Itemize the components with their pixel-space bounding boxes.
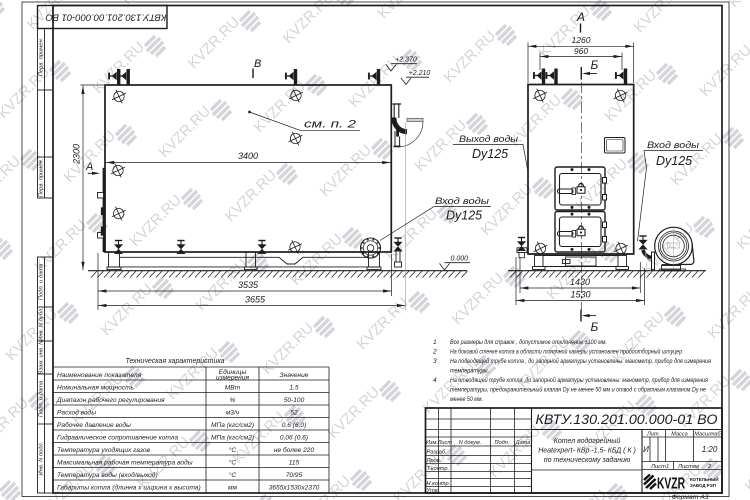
svg-text:KVZR.RU: KVZR.RU xyxy=(164,345,223,404)
svg-text:На отводящей трубе котла ,до з: На отводящей трубе котла ,до запорной ар… xyxy=(450,376,708,384)
svg-text:Масса: Масса xyxy=(671,432,688,438)
svg-text:115: 115 xyxy=(289,460,300,467)
svg-text:Гидравлическое сопротивление к: Гидравлическое сопротивление котла xyxy=(57,434,178,442)
svg-text:70/95: 70/95 xyxy=(286,472,303,479)
svg-text:KVZR.RU: KVZR.RU xyxy=(288,231,347,290)
svg-text:KVZR.RU: KVZR.RU xyxy=(325,384,384,443)
svg-text:3655х1530х2370: 3655х1530х2370 xyxy=(269,485,320,492)
svg-text:KVZR.RU: KVZR.RU xyxy=(156,103,215,162)
svg-text:КВТУ.130.201.00.000-01 ВО: КВТУ.130.201.00.000-01 ВО xyxy=(536,412,719,427)
svg-text:Перв. примен.: Перв. примен. xyxy=(39,38,45,77)
svg-text:KVZR.RU: KVZR.RU xyxy=(280,0,339,47)
svg-text:МПа (кгс/см2): МПа (кгс/см2) xyxy=(211,435,254,442)
svg-text:Перв. примен.: Перв. примен. xyxy=(39,159,45,198)
svg-text:KVZR.RU: KVZR.RU xyxy=(317,142,376,201)
svg-text:2: 2 xyxy=(432,349,437,356)
svg-text:КОТЕЛЬНЫЙ: КОТЕЛЬНЫЙ xyxy=(690,477,719,482)
svg-text:Температура уходящих газов: Температура уходящих газов xyxy=(57,446,150,454)
svg-text:мм: мм xyxy=(228,485,238,492)
svg-text:Утв.: Утв. xyxy=(426,488,440,494)
svg-text:Dy125: Dy125 xyxy=(472,147,508,161)
svg-text:KVZR.RU: KVZR.RU xyxy=(734,195,750,254)
svg-text:N докум.: N докум. xyxy=(459,440,482,446)
svg-text:+2.210: +2.210 xyxy=(409,70,431,77)
svg-text:KVZR.RU: KVZR.RU xyxy=(441,28,500,87)
svg-text:Выход воды: Выход воды xyxy=(459,134,519,144)
svg-text:Heatexpert- КВр -1,5- КБД ( К: Heatexpert- КВр -1,5- КБД ( К ) xyxy=(538,448,636,455)
svg-text:KVZR.RU: KVZR.RU xyxy=(354,295,413,354)
svg-text:МВт: МВт xyxy=(225,385,241,392)
svg-text:KVZR.RU: KVZR.RU xyxy=(742,437,750,496)
svg-text:0,06 (0,6): 0,06 (0,6) xyxy=(280,435,308,442)
svg-text:KVZR.RU: KVZR.RU xyxy=(0,153,24,212)
svg-text:KVZR.RU: KVZR.RU xyxy=(705,284,750,343)
svg-text:А: А xyxy=(85,161,93,173)
svg-text:менее 50 мм.: менее 50 мм. xyxy=(450,396,483,403)
svg-text:Разраб.: Разраб. xyxy=(427,450,447,456)
svg-text:KVZR.RU: KVZR.RU xyxy=(251,78,310,137)
svg-text:°С: °С xyxy=(229,459,237,467)
svg-text:1: 1 xyxy=(666,464,669,470)
svg-text:KVZR.RU: KVZR.RU xyxy=(185,14,244,73)
svg-text:В: В xyxy=(254,58,261,70)
svg-text:Н.контр.: Н.контр. xyxy=(427,481,451,487)
svg-text:ЗАВОД РЭП: ЗАВОД РЭП xyxy=(690,483,716,488)
svg-text:52: 52 xyxy=(290,410,298,417)
svg-text:2300: 2300 xyxy=(72,144,82,165)
svg-text:KVZR.RU: KVZR.RU xyxy=(90,39,149,98)
svg-text:Взам. инв. N: Взам. инв. N xyxy=(39,340,45,375)
svg-text:температуры, предохранительный: температуры, предохранительный клапан Dy… xyxy=(450,386,706,394)
svg-text:Лит.: Лит. xyxy=(646,432,660,438)
svg-text:И: И xyxy=(643,445,649,454)
svg-text:KVZR.RU: KVZR.RU xyxy=(119,0,178,8)
svg-text:На боковой стенке котла в обла: На боковой стенке котла в области топочн… xyxy=(450,348,682,356)
svg-text:температуры.: температуры. xyxy=(450,368,489,375)
svg-text:Инв. N дубл.: Инв. N дубл. xyxy=(39,307,45,341)
svg-text:KVZR.RU: KVZR.RU xyxy=(412,117,471,176)
svg-text:3: 3 xyxy=(433,358,437,365)
svg-text:см. п. 2: см. п. 2 xyxy=(304,119,356,131)
svg-text:Техническая характеристика: Техническая характеристика xyxy=(125,358,224,365)
svg-text:Рабочее давление воды: Рабочее давление воды xyxy=(57,421,131,429)
svg-text:960: 960 xyxy=(574,46,588,56)
svg-text:Котел водогрейный: Котел водогрейный xyxy=(554,437,621,445)
svg-text:КВТУ.130.201.00.000-01 ВО: КВТУ.130.201.00.000-01 ВО xyxy=(45,11,167,22)
svg-text:°С: °С xyxy=(229,471,237,479)
svg-text:KVZR.RU: KVZR.RU xyxy=(0,395,32,454)
svg-text:0,6 (6,0): 0,6 (6,0) xyxy=(282,422,307,429)
svg-text:по техническому заданию: по техническому заданию xyxy=(544,456,631,464)
svg-text:0.000: 0.000 xyxy=(450,256,468,263)
svg-text:измерения: измерения xyxy=(216,375,249,382)
svg-text:Dy125: Dy125 xyxy=(446,209,482,223)
svg-text:3400: 3400 xyxy=(238,151,258,161)
svg-text:°С: °С xyxy=(229,446,237,454)
svg-text:Подп. и дата: Подп. и дата xyxy=(39,263,45,300)
svg-text:Значение: Значение xyxy=(280,372,309,379)
svg-text:KVZR.RU: KVZR.RU xyxy=(98,281,157,340)
svg-text:Б: Б xyxy=(591,58,599,72)
svg-text:Все размеры для справок , допу: Все размеры для справок , допустимое отк… xyxy=(450,338,607,346)
svg-text:Номинальная мощность: Номинальная мощность xyxy=(57,385,135,392)
svg-text:Лист: Лист xyxy=(437,440,453,446)
svg-text:1260: 1260 xyxy=(572,35,591,45)
svg-text:Б: Б xyxy=(591,320,599,334)
svg-text:Расход воды: Расход воды xyxy=(57,409,96,417)
svg-text:1,5: 1,5 xyxy=(289,385,298,392)
svg-text:Габариты котла (длинна х ширин: Габариты котла (длинна х ширина х высота… xyxy=(57,484,201,492)
svg-text:А: А xyxy=(576,10,585,24)
svg-text:не более 220: не более 220 xyxy=(274,446,315,454)
svg-text:KVZR.RU: KVZR.RU xyxy=(127,192,186,251)
svg-text:Максимальная рабочая температу: Максимальная рабочая температура воды xyxy=(57,459,193,467)
svg-text:KVZR: KVZR xyxy=(657,476,685,493)
svg-text:МПа (кгс/см2): МПа (кгс/см2) xyxy=(211,422,254,429)
svg-text:Dy125: Dy125 xyxy=(656,154,692,168)
svg-text:50-100: 50-100 xyxy=(284,397,305,404)
svg-text:4: 4 xyxy=(433,377,437,384)
svg-text:+2.370: +2.370 xyxy=(395,57,417,64)
svg-text:Вход воды: Вход воды xyxy=(435,196,490,206)
svg-text:KVZR.RU: KVZR.RU xyxy=(61,128,120,187)
svg-text:KVZR.RU: KVZR.RU xyxy=(697,42,750,101)
svg-text:Т.контр.: Т.контр. xyxy=(427,466,450,472)
svg-text:Диапазон рабочего регулировани: Диапазон рабочего регулирования xyxy=(56,396,165,404)
svg-text:KVZR.RU: KVZR.RU xyxy=(222,167,281,226)
svg-text:KVZR.RU: KVZR.RU xyxy=(602,67,661,126)
svg-text:3535: 3535 xyxy=(238,280,259,290)
svg-text:KVZR.RU: KVZR.RU xyxy=(259,320,318,379)
svg-text:Пров.: Пров. xyxy=(427,458,442,464)
svg-text:1530: 1530 xyxy=(570,290,590,300)
svg-text:Масштаб: Масштаб xyxy=(694,432,721,438)
svg-text:На подводящей трубе котла ,: На подводящей трубе котла , до запорной … xyxy=(450,357,711,365)
svg-text:Листов: Листов xyxy=(677,464,699,470)
svg-text:Подп. и дата: Подп. и дата xyxy=(39,380,45,417)
svg-text:Подп.: Подп. xyxy=(495,440,510,446)
svg-text:KVZR.RU: KVZR.RU xyxy=(375,0,434,22)
svg-text:Вход воды: Вход воды xyxy=(647,140,700,150)
svg-text:м3/ч: м3/ч xyxy=(226,410,240,417)
svg-text:Наименование показателя: Наименование показателя xyxy=(57,372,142,379)
svg-text:3655: 3655 xyxy=(245,295,266,305)
svg-text:1:20: 1:20 xyxy=(702,445,718,454)
svg-text:Лист: Лист xyxy=(650,464,666,470)
svg-text:Изм.: Изм. xyxy=(426,440,438,446)
svg-text:KVZR.RU: KVZR.RU xyxy=(0,64,53,123)
svg-text:1: 1 xyxy=(433,339,437,346)
svg-text:Инв. N подл.: Инв. N подл. xyxy=(39,442,45,476)
svg-text:Дата: Дата xyxy=(515,440,531,446)
svg-text:Температура воды (вход/выход): Температура воды (вход/выход) xyxy=(57,471,158,479)
svg-text:1430: 1430 xyxy=(570,277,590,287)
svg-text:KVZR.RU: KVZR.RU xyxy=(449,270,508,329)
svg-text:Формат А3: Формат А3 xyxy=(672,495,710,500)
svg-text:%: % xyxy=(230,397,236,404)
